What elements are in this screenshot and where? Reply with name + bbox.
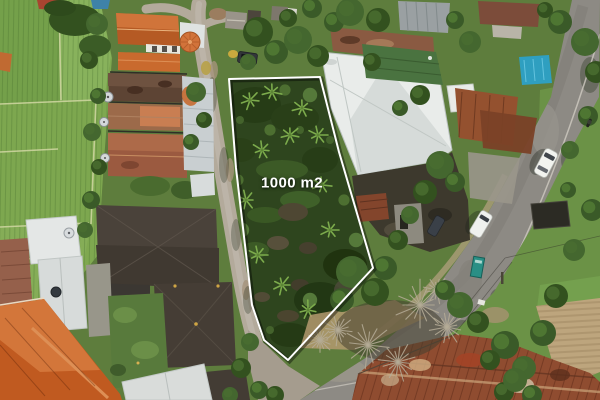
tree-canopy xyxy=(241,333,259,351)
tree-canopy xyxy=(279,9,297,27)
tree-canopy xyxy=(530,320,556,346)
yellow-object xyxy=(228,50,238,58)
tree-canopy xyxy=(435,280,455,300)
tree-canopy xyxy=(480,350,500,370)
plot-bush xyxy=(303,88,317,102)
tree-canopy xyxy=(373,256,397,280)
dark-roof-compound xyxy=(0,205,250,400)
tree-canopy xyxy=(243,17,273,47)
tree-canopy xyxy=(413,180,437,204)
tree-canopy xyxy=(544,284,568,308)
tree-canopy xyxy=(86,13,108,35)
tree-canopy xyxy=(560,182,576,198)
tree-canopy xyxy=(91,159,107,175)
tree-canopy xyxy=(410,85,430,105)
plot-bush xyxy=(349,233,363,247)
aerial-drone-photo: 1000 m2 xyxy=(0,0,600,400)
tree-canopy xyxy=(548,10,572,34)
tree-canopy xyxy=(264,40,288,64)
tree-canopy xyxy=(80,51,98,69)
tree-canopy xyxy=(446,11,464,29)
tree-canopy xyxy=(90,88,106,104)
aerial-photo-canvas xyxy=(0,0,600,400)
tree-canopy xyxy=(563,239,585,261)
tree-canopy xyxy=(392,100,408,116)
tree-canopy xyxy=(571,28,599,56)
tree-canopy xyxy=(284,26,312,54)
tree-canopy xyxy=(240,54,256,70)
blue-tarp-roof xyxy=(519,55,552,85)
tree-canopy xyxy=(561,141,579,159)
tree-canopy xyxy=(467,311,489,333)
dark-shed xyxy=(531,201,570,229)
tree-canopy xyxy=(231,358,251,378)
tree-canopy xyxy=(459,31,481,53)
plot-bush xyxy=(338,194,349,205)
plot-bush xyxy=(326,136,334,144)
plot-bush xyxy=(264,124,275,135)
utility-pole xyxy=(501,272,504,284)
tree-canopy xyxy=(503,368,527,392)
tree-canopy xyxy=(196,112,212,128)
plot-bush xyxy=(296,66,304,74)
tree-canopy xyxy=(307,45,329,67)
tree-canopy xyxy=(83,123,101,141)
tree-canopy xyxy=(186,82,206,102)
tree-canopy xyxy=(82,191,100,209)
tree-canopy xyxy=(183,134,199,150)
tree-canopy xyxy=(445,172,465,192)
tree-canopy xyxy=(77,222,93,238)
water-tank xyxy=(51,287,61,297)
tree-canopy xyxy=(366,8,390,32)
tree-canopy xyxy=(250,381,268,399)
plot-bush xyxy=(266,326,274,334)
tree-canopy xyxy=(363,53,381,71)
tree-canopy xyxy=(388,230,408,250)
tree-canopy xyxy=(302,0,322,18)
blue-tarp-top xyxy=(91,0,110,9)
plot-bush xyxy=(236,116,244,124)
tree-canopy xyxy=(401,206,419,224)
